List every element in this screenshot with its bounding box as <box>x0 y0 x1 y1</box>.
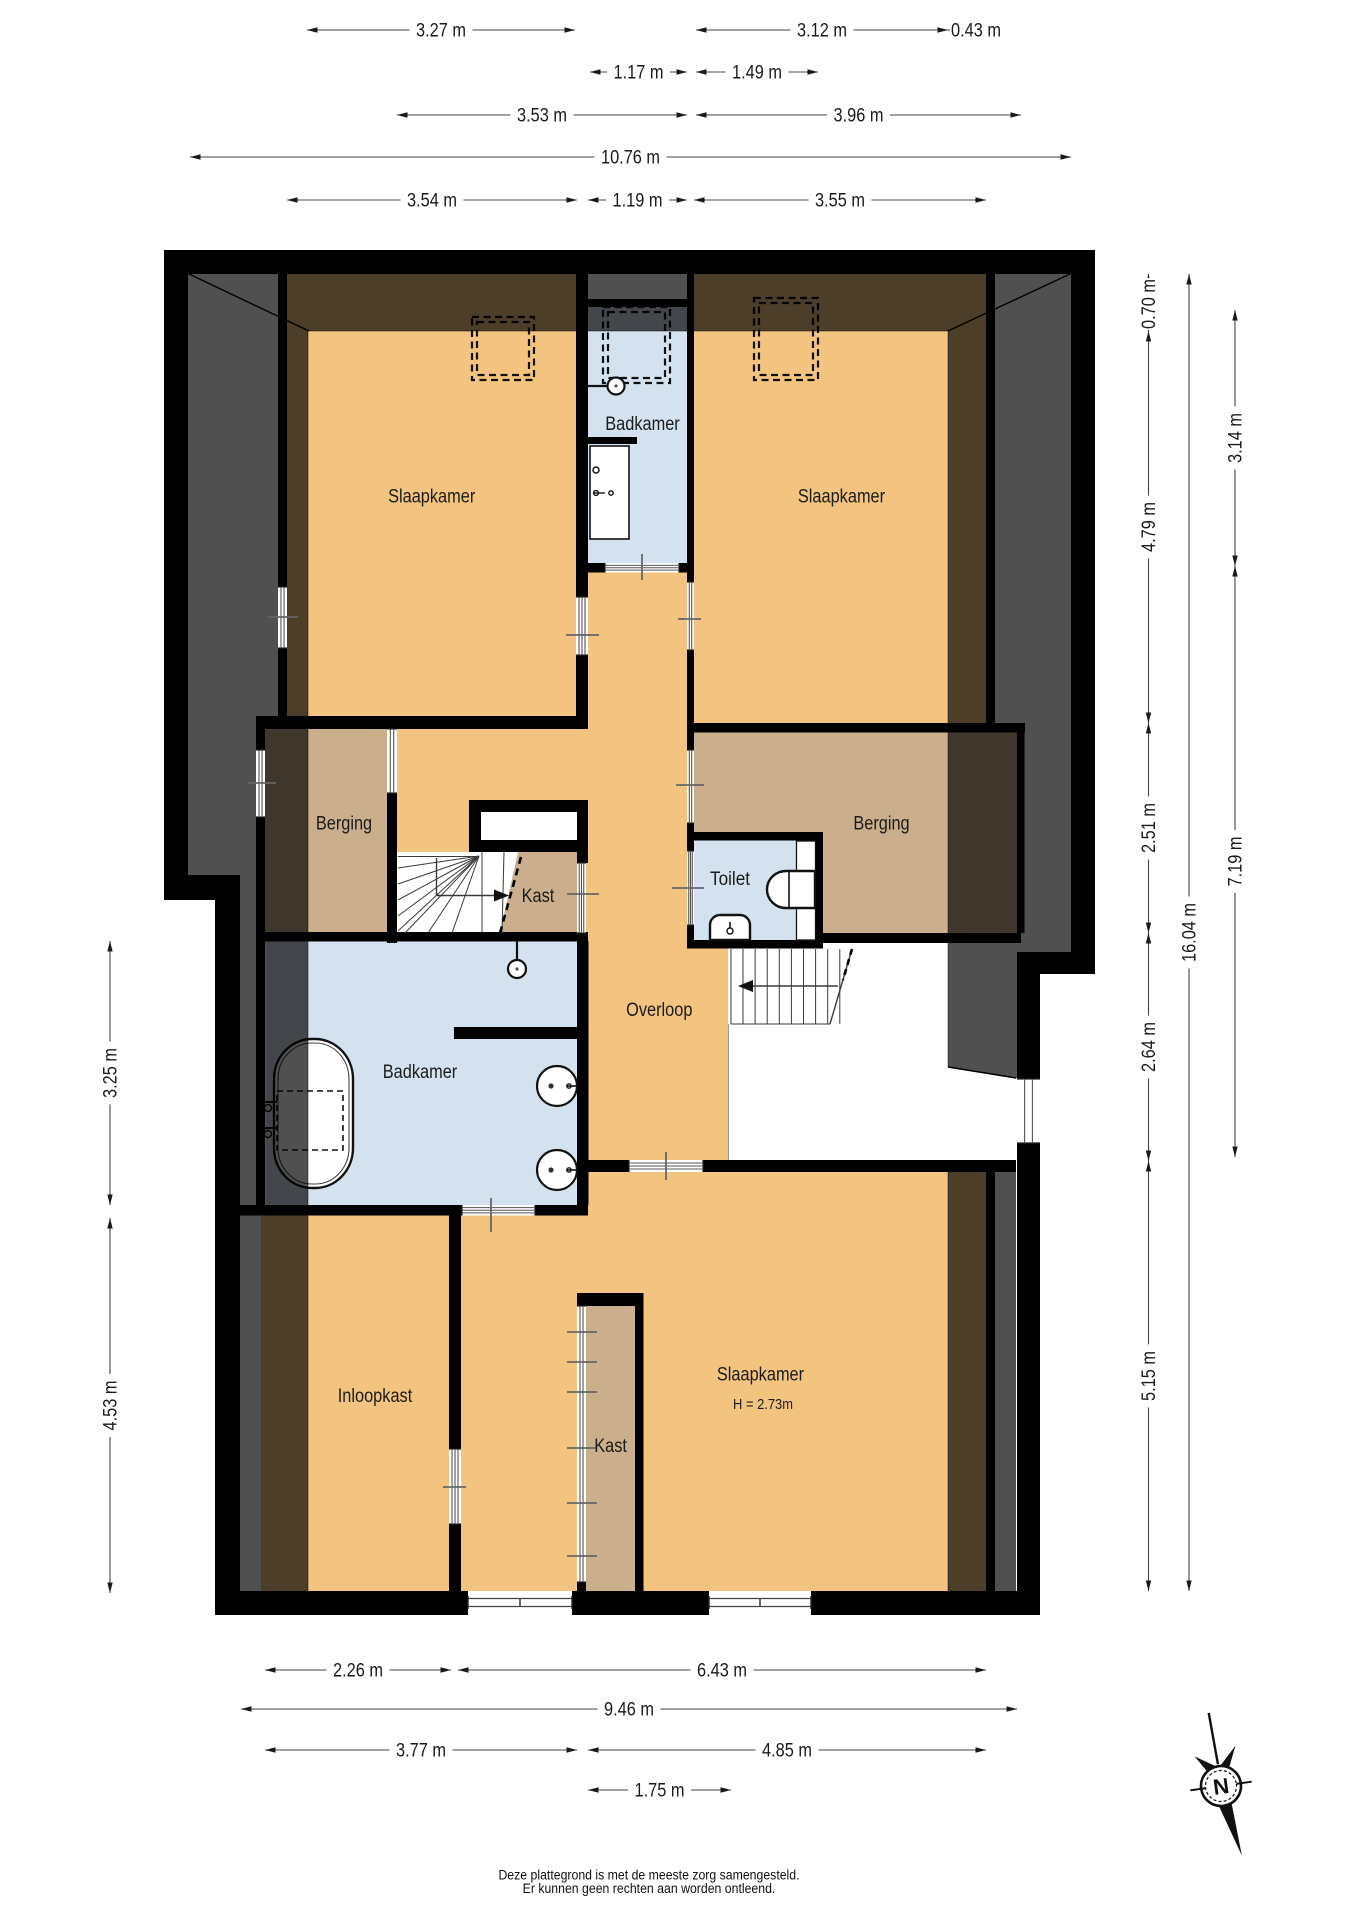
svg-text:7.19 m: 7.19 m <box>1226 837 1247 887</box>
svg-text:3.53 m: 3.53 m <box>517 106 567 127</box>
svg-text:6.43 m: 6.43 m <box>697 1661 747 1682</box>
svg-text:0.70 m: 0.70 m <box>1139 279 1160 329</box>
svg-text:Er kunnen geen rechten aan wor: Er kunnen geen rechten aan worden ontlee… <box>523 1881 776 1896</box>
svg-text:Kast: Kast <box>522 886 555 907</box>
svg-text:Slaapkamer: Slaapkamer <box>798 487 886 508</box>
svg-text:10.76 m: 10.76 m <box>601 148 660 169</box>
svg-text:2.51 m: 2.51 m <box>1139 803 1160 853</box>
svg-text:Kast: Kast <box>594 1436 627 1457</box>
svg-text:3.54 m: 3.54 m <box>407 191 457 212</box>
svg-text:3.25 m: 3.25 m <box>101 1048 122 1098</box>
svg-text:Overloop: Overloop <box>626 1000 692 1021</box>
svg-text:2.64 m: 2.64 m <box>1139 1022 1160 1072</box>
svg-text:3.12 m: 3.12 m <box>797 21 847 42</box>
svg-text:3.55 m: 3.55 m <box>815 191 865 212</box>
svg-text:3.77 m: 3.77 m <box>396 1741 446 1762</box>
svg-text:16.04 m: 16.04 m <box>1180 903 1201 962</box>
svg-text:Badkamer: Badkamer <box>383 1062 458 1083</box>
svg-text:4.53 m: 4.53 m <box>101 1381 122 1431</box>
svg-text:Berging: Berging <box>316 814 372 835</box>
svg-text:Inloopkast: Inloopkast <box>338 1386 413 1407</box>
svg-text:1.75 m: 1.75 m <box>635 1781 685 1802</box>
svg-text:Toilet: Toilet <box>710 869 751 890</box>
svg-text:3.96 m: 3.96 m <box>834 106 884 127</box>
svg-text:1.19 m: 1.19 m <box>613 191 663 212</box>
svg-text:3.14 m: 3.14 m <box>1226 413 1247 463</box>
svg-text:Slaapkamer: Slaapkamer <box>717 1365 805 1386</box>
svg-text:2.26 m: 2.26 m <box>333 1661 383 1682</box>
svg-text:0.43 m: 0.43 m <box>951 21 1001 42</box>
svg-text:4.79 m: 4.79 m <box>1139 502 1160 552</box>
svg-text:5.15 m: 5.15 m <box>1139 1351 1160 1401</box>
svg-text:9.46 m: 9.46 m <box>604 1700 654 1721</box>
svg-text:Slaapkamer: Slaapkamer <box>388 487 476 508</box>
svg-text:H = 2.73m: H = 2.73m <box>733 1396 793 1413</box>
svg-text:Berging: Berging <box>853 814 909 835</box>
svg-text:Badkamer: Badkamer <box>605 414 680 435</box>
svg-text:1.17 m: 1.17 m <box>614 63 664 84</box>
svg-text:3.27 m: 3.27 m <box>416 21 466 42</box>
svg-text:1.49 m: 1.49 m <box>732 63 782 84</box>
svg-text:4.85 m: 4.85 m <box>762 1741 812 1762</box>
